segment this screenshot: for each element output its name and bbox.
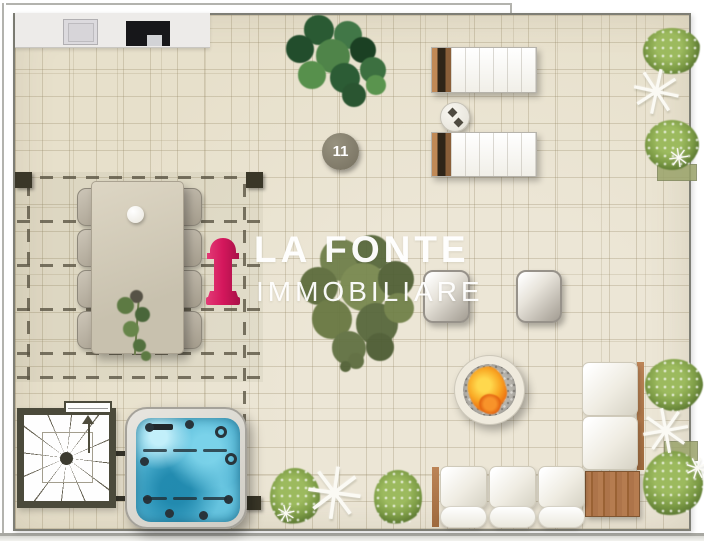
- direction-arrow-head: [82, 415, 94, 424]
- palm-plant: ✳ ✳: [266, 458, 426, 538]
- leaf: [135, 307, 150, 322]
- direction-arrow: [88, 423, 90, 453]
- palm-plant: ✳ ✳: [630, 26, 704, 186]
- corner-sofa-vertical: [582, 361, 644, 471]
- hot-tub: [125, 407, 247, 529]
- table-plate: [127, 206, 144, 223]
- palm-frond-icon: ✳: [299, 454, 369, 534]
- tub-seat-line: [173, 497, 197, 500]
- leaf: [366, 75, 386, 95]
- tub-seat-line: [203, 449, 227, 452]
- lounger-mattress: [451, 48, 536, 92]
- tub-seat-line: [143, 449, 167, 452]
- sink-basin: [68, 23, 94, 42]
- pergola-beam: [27, 174, 30, 380]
- tub-seat-line: [173, 449, 197, 452]
- landing-line: [68, 408, 108, 409]
- unit-number-label: 11: [333, 143, 349, 160]
- leaf: [298, 61, 326, 89]
- tub-seat-line: [203, 497, 227, 500]
- table-item: [448, 108, 458, 118]
- stair-landing: [64, 401, 112, 414]
- sun-lounger: [431, 132, 537, 177]
- palm-frond-icon: ✳: [624, 57, 688, 128]
- stair-center-column: [60, 452, 73, 465]
- lounger-mattress: [451, 133, 536, 176]
- corner-sofa-horizontal: [432, 466, 588, 528]
- monstera-plant: [286, 15, 392, 108]
- sun-lounger: [431, 47, 537, 93]
- sofa-back-cushion: [538, 506, 585, 528]
- sofa-cushion: [538, 466, 585, 508]
- palm-frond-icon: ✳: [666, 145, 691, 174]
- pergola-beam: [17, 176, 261, 179]
- pergola-post: [15, 172, 32, 188]
- leaf: [342, 83, 366, 107]
- leaf: [123, 321, 139, 337]
- palm-plant: ✳ ✳: [640, 355, 704, 525]
- jet-nozzle: [215, 426, 227, 438]
- wall-line-left: [2, 3, 4, 533]
- outdoor-kitchen-counter: [15, 13, 210, 48]
- leaf: [340, 361, 351, 372]
- jet-nozzle: [165, 509, 174, 518]
- fountain-logo-icon: [205, 237, 241, 307]
- leaf: [117, 297, 134, 314]
- watermark-title: LA FONTE: [254, 229, 470, 271]
- armchair: [516, 270, 562, 323]
- leaf: [366, 333, 394, 361]
- sink: [63, 19, 98, 45]
- jet-nozzle: [225, 453, 237, 465]
- sofa-cushion: [489, 466, 536, 508]
- pergola-post: [246, 172, 263, 188]
- leaf: [141, 351, 151, 361]
- jet-nozzle: [145, 423, 154, 432]
- tub-seat-line: [143, 497, 167, 500]
- corner-wood-table: [585, 471, 640, 517]
- wall-line-top: [6, 3, 512, 5]
- lounger-headrest: [432, 133, 451, 176]
- palm-foliage: [374, 470, 422, 526]
- jet-nozzle: [199, 511, 208, 520]
- table-plant: [115, 283, 170, 363]
- floor-plan-canvas: 11: [0, 0, 704, 541]
- sofa-cushion: [582, 416, 638, 470]
- pergola-beam: [17, 376, 261, 379]
- sofa-wood-arm: [432, 467, 439, 527]
- table-item: [454, 118, 464, 128]
- sofa-cushion: [582, 362, 638, 416]
- pergola-post: [245, 496, 261, 510]
- sofa-back-cushion: [489, 506, 536, 528]
- sofa-back-cushion: [440, 506, 487, 528]
- lounger-side-table: [440, 102, 470, 132]
- grill: [126, 21, 170, 46]
- jet-nozzle: [185, 420, 194, 429]
- jet-nozzle: [140, 457, 149, 466]
- spiral-staircase: [17, 408, 116, 508]
- leaf: [286, 35, 314, 63]
- watermark-subtitle: IMMOBILIARE: [256, 276, 484, 308]
- unit-number-badge: 11: [322, 133, 359, 170]
- grill-detail: [147, 35, 162, 46]
- lounger-headrest: [432, 48, 451, 92]
- sofa-cushion: [440, 466, 487, 508]
